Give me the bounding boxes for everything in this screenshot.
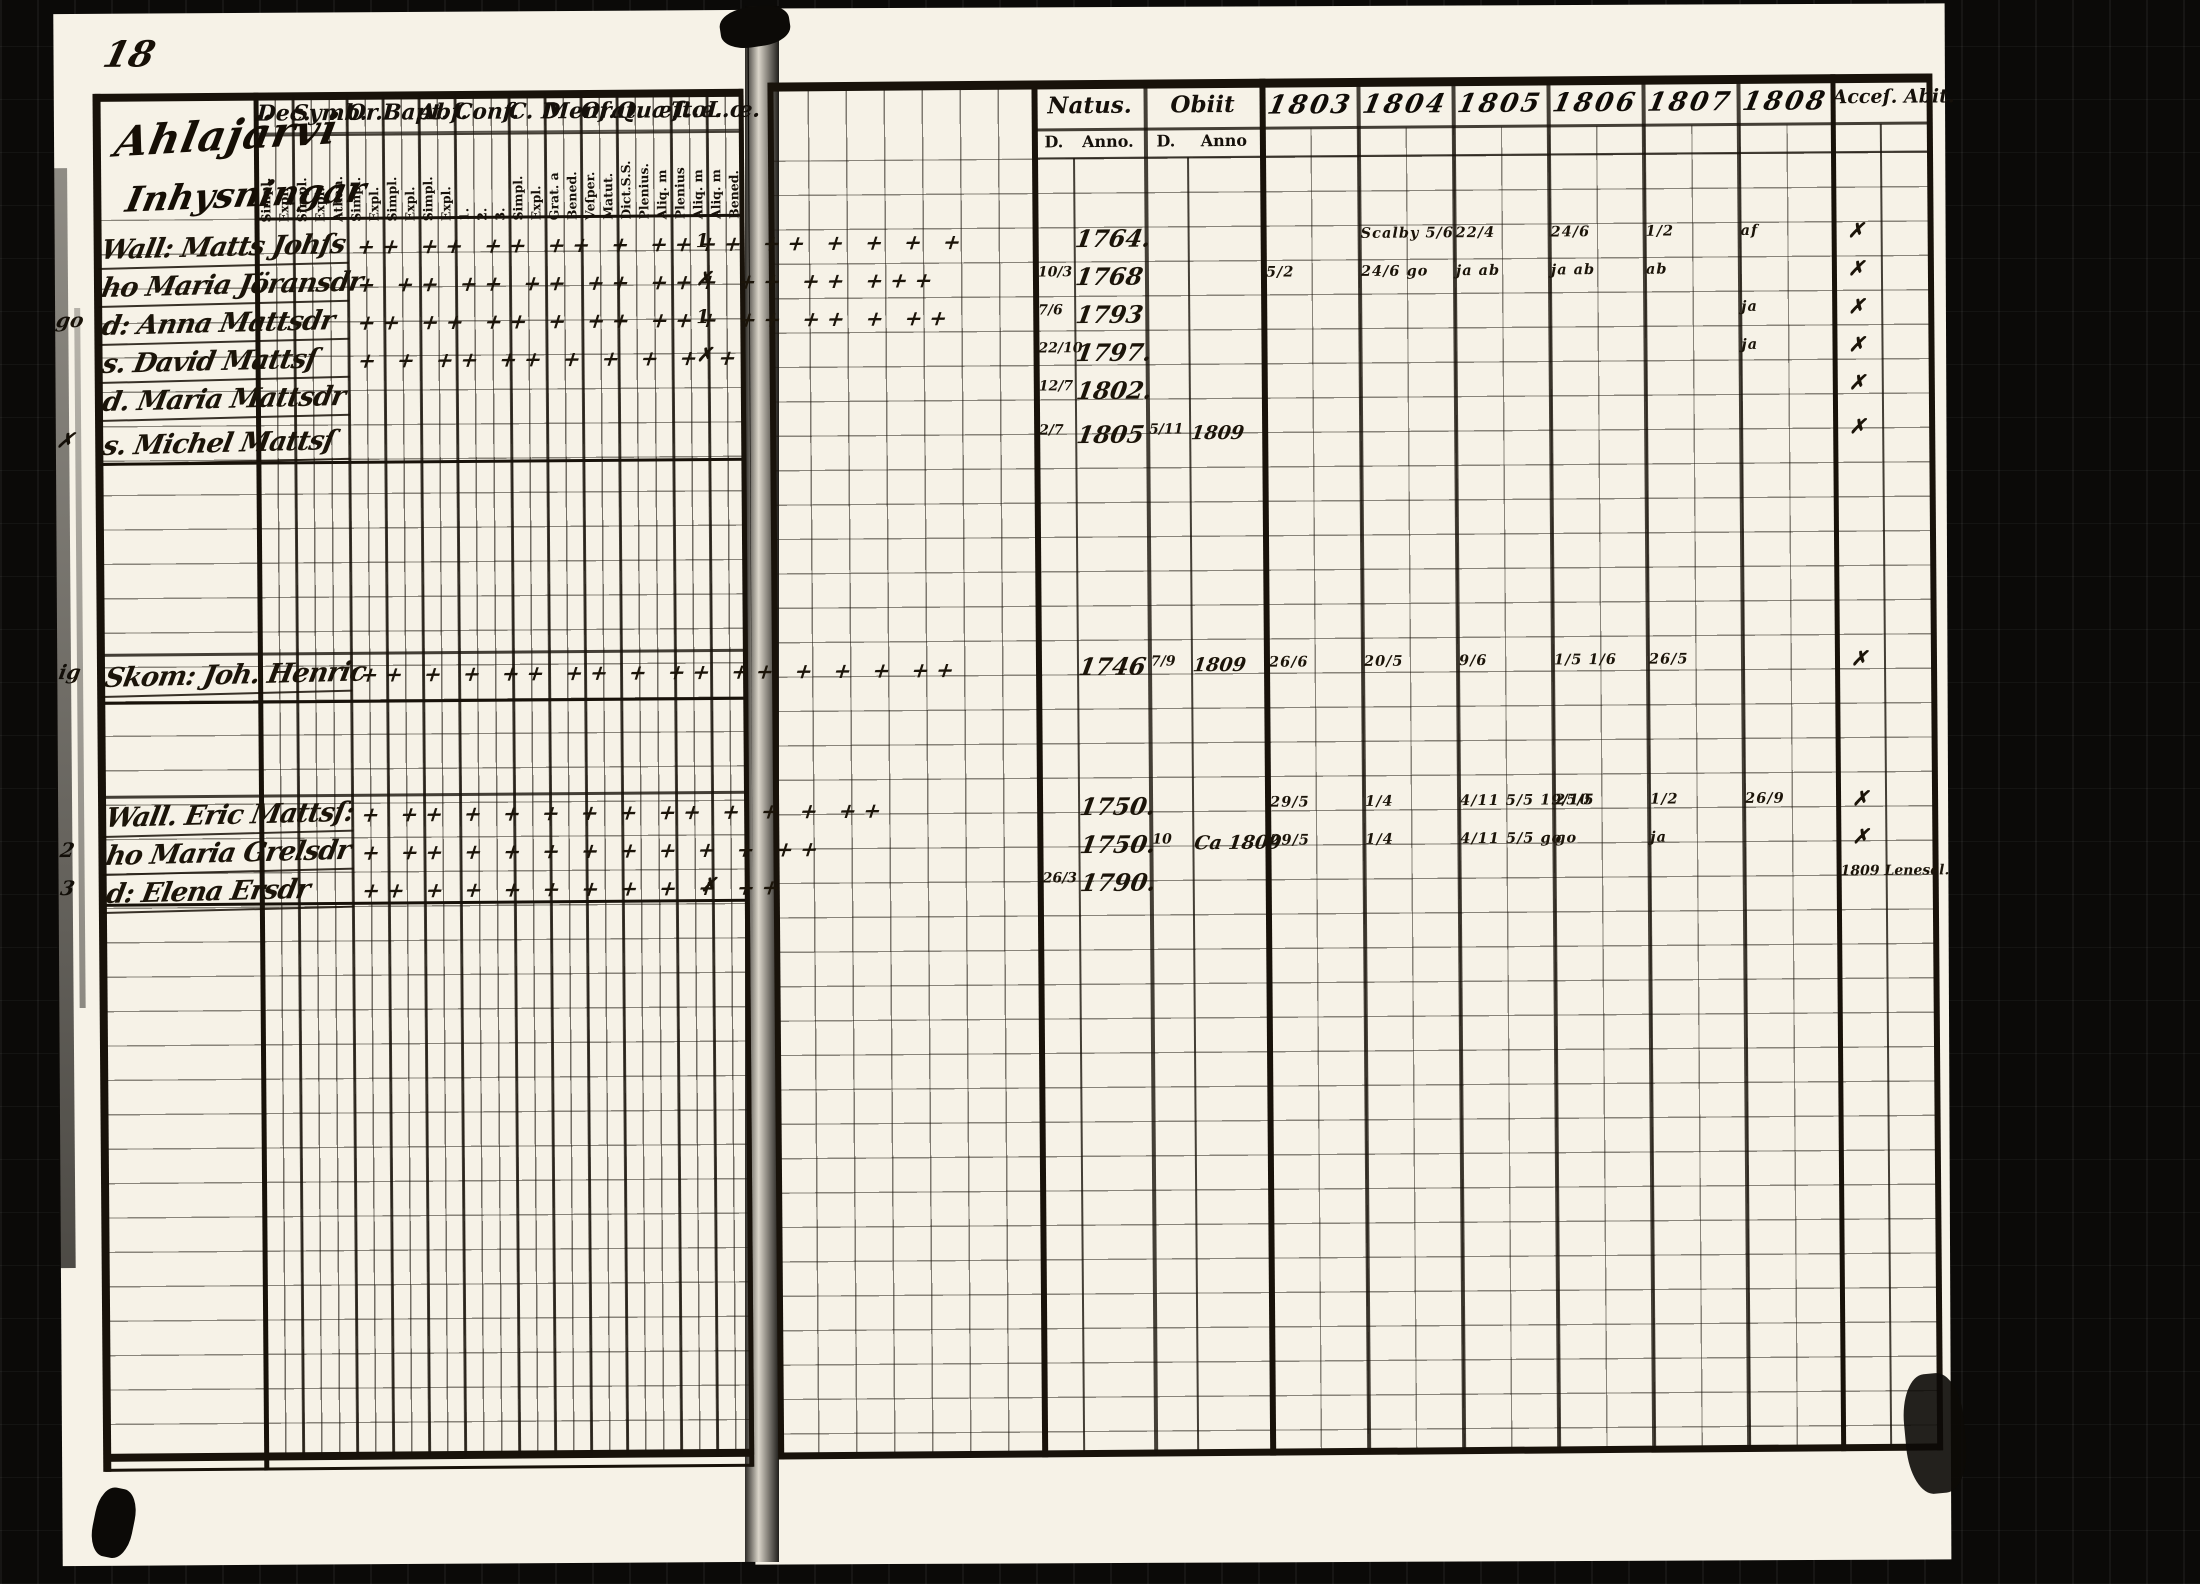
subheader: Expl. <box>527 134 546 220</box>
communion-1807 <box>1647 374 1741 375</box>
subheader-natus-anno: Anno. <box>1073 132 1143 152</box>
communion-1806: 1/5 1/6 <box>1554 651 1648 669</box>
subheader: Simpl. <box>419 135 438 221</box>
subheader: Simpl. <box>347 136 366 222</box>
communion-1804 <box>1362 420 1456 421</box>
scan-artifact <box>1900 1371 1971 1496</box>
year-header-1803: 1803 <box>1260 90 1361 121</box>
attendance-marks: ++ + + + + + + + + ++ <box>359 875 712 903</box>
obiit-year <box>1190 302 1264 303</box>
communion-1806: 25/5 <box>1555 791 1649 809</box>
column-header-abs: Abſ. Simpl. Expl. <box>419 95 456 219</box>
communion-1803 <box>1266 225 1360 226</box>
communion-1807: 1/2 <box>1650 790 1744 808</box>
communion-1803: 26/6 <box>1269 653 1363 671</box>
communion-1807: 26/5 <box>1649 650 1743 668</box>
column-header-toe: T.œ. Plenius Aliq. m <box>670 93 707 217</box>
communion-1804 <box>1361 300 1455 301</box>
obiit-year <box>1190 340 1264 341</box>
communion-1808 <box>1742 417 1836 418</box>
natus-year: 1768 <box>1074 262 1149 292</box>
subheader: Simpl. <box>383 135 402 221</box>
subheader: Dict.S.S. <box>617 134 636 220</box>
communion-1805: 4/11 5/5 go <box>1460 829 1554 847</box>
subheader: Simpl. <box>257 136 276 222</box>
obiit-year <box>1190 226 1264 227</box>
person-name: Wall: Matts Johſs <box>98 228 356 270</box>
natus-year: 1746 <box>1077 652 1152 682</box>
person-name: d: Elena Ersdr <box>103 872 361 914</box>
communion-1807 <box>1646 336 1740 337</box>
year-header-1804: 1804 <box>1355 89 1456 120</box>
column-header-cd: C. D Simpl. Expl. <box>509 94 546 218</box>
attendance-marks <box>359 427 704 430</box>
communion-1803 <box>1266 301 1360 302</box>
header-label: Orat. <box>579 94 617 132</box>
natus-year: 1750. <box>1078 830 1153 860</box>
header-label: Dec. <box>255 96 293 134</box>
abit-mark: ✗ <box>1849 414 1893 438</box>
communion-1804: 1/4 <box>1365 792 1459 810</box>
header-label: Quæſt. <box>615 93 671 131</box>
column-header-bapt: Bapt. Simpl. Expl. <box>383 95 420 219</box>
communion-1803 <box>1271 869 1365 870</box>
subheader-obiit-d: D. <box>1145 131 1187 150</box>
attendance-marks: + ++ ++ ++ ++ +++ ++ ++ +++ <box>354 269 707 297</box>
person-name: d: Anna Mattsdr <box>99 304 357 346</box>
communion-1806: ja ab <box>1551 261 1645 279</box>
communion-1805: 4/11 5/5 19/10 <box>1460 791 1554 809</box>
communion-1806 <box>1552 419 1646 420</box>
communion-1806 <box>1552 375 1646 376</box>
obiit-day: 5/11 <box>1149 421 1189 437</box>
column-header-conf: Conf. 1. 2. 3. <box>455 95 510 219</box>
communion-1808 <box>1745 827 1839 828</box>
communion-1805 <box>1457 375 1551 376</box>
obiit-year: 1809 <box>1190 422 1267 445</box>
communion-1807: ja <box>1650 828 1744 846</box>
subheader: Aliq. m <box>689 133 708 219</box>
attendance-marks: + + ++ ++ + + + + + <box>355 345 708 373</box>
subheader: Aliq. m <box>653 133 672 219</box>
attendance-marks: ++ ++ ++ + ++ +++ ++ ++ + ++ <box>354 307 707 335</box>
left-table-bottom-rule-2 <box>105 1464 753 1472</box>
communion-1804 <box>1362 376 1456 377</box>
year-header-1806: 1806 <box>1545 88 1646 119</box>
communion-1804 <box>1366 868 1460 869</box>
obiit-year <box>1194 794 1268 795</box>
communion-1804: 1/4 <box>1365 830 1459 848</box>
subheader: Bened. <box>563 134 582 220</box>
scan-artifact <box>87 1484 140 1561</box>
communion-1805: ja ab <box>1456 261 1550 279</box>
lm-mark: 1 <box>696 230 738 252</box>
lm-mark: ✗ <box>701 874 743 896</box>
communion-1805 <box>1457 419 1551 420</box>
communion-1805 <box>1461 867 1555 868</box>
subheader: Expl. <box>401 135 420 221</box>
communion-1808 <box>1744 649 1838 650</box>
abit-mark: ✗ <box>1848 294 1892 318</box>
subheader: Veſper. <box>581 134 600 220</box>
communion-1807 <box>1646 298 1740 299</box>
subheader-natus-d: D. <box>1035 132 1073 151</box>
subheader: 3. <box>491 135 510 221</box>
subheader: Aliq. m <box>707 133 726 219</box>
subheader: Plenius <box>671 133 690 219</box>
lm-mark: ✗ <box>696 268 738 290</box>
abit-mark: ✗ <box>1851 646 1895 670</box>
communion-1808 <box>1741 259 1835 260</box>
communion-1805: 22/4 <box>1456 223 1550 241</box>
column-header-obiit: Obiit <box>1147 91 1259 119</box>
subheader: 2. <box>473 135 492 221</box>
natus-day: 12/7 <box>1039 378 1075 394</box>
abit-mark: ✗ <box>1849 370 1893 394</box>
natus-year: 1797. <box>1074 338 1149 368</box>
communion-1804: 24/6 go <box>1361 262 1455 280</box>
communion-1804: Scalby 5/6 <box>1361 224 1455 242</box>
column-header-symb: Symb. Simpl. Expl. Athan. <box>293 96 348 220</box>
natus-year: 1802. <box>1074 376 1149 406</box>
column-header-orat: Orat. Veſper. Matut. <box>581 94 618 218</box>
subheader: Expl. <box>275 136 294 222</box>
natus-year: 1793 <box>1074 300 1149 330</box>
person-name: s. Michel Mattsſ <box>99 424 357 466</box>
attendance-marks: ++ ++ ++ ++ + ++++ ++ + + + + <box>354 231 707 259</box>
year-header-1807: 1807 <box>1640 87 1741 118</box>
attendance-marks: + ++ + + + + + ++ + + + ++ <box>358 799 711 827</box>
natus-year: 1805 <box>1075 420 1150 450</box>
abit-mark: ✗ <box>1848 256 1892 280</box>
subheader-obiit-anno: Anno <box>1187 131 1261 151</box>
row-note: 1809 Lenesel. <box>1841 863 1941 879</box>
communion-1808: af <box>1741 221 1835 239</box>
communion-1805 <box>1456 299 1550 300</box>
subheader: Expl. <box>437 135 456 221</box>
subheader: Simpl. <box>509 134 528 220</box>
obiit-year <box>1195 870 1269 871</box>
scan-artifact <box>717 2 792 52</box>
column-header-loe: L.œ. Aliq. m Bened. <box>706 93 743 217</box>
page-number: 18 <box>99 33 159 75</box>
communion-1803: 29/5 <box>1270 793 1364 811</box>
subheader: Matut. <box>599 134 618 220</box>
header-label: Conf. <box>453 95 509 133</box>
communion-1808: ja <box>1741 297 1835 315</box>
attendance-marks: + ++ + + + + + + + + ++ <box>358 837 711 865</box>
column-header-quaest: Quæſt. Dict.S.S. Plenius. Aliq. m <box>617 93 672 217</box>
natus-year: 1764. <box>1073 224 1148 254</box>
communion-1806: 24/6 <box>1551 223 1645 241</box>
natus-day: 26/3 <box>1043 870 1079 886</box>
communion-1803: 29/5 <box>1270 831 1364 849</box>
subheader: Plenius. <box>635 133 654 219</box>
subheader: Bened. <box>725 133 744 219</box>
communion-1803 <box>1266 339 1360 340</box>
subheader: Simpl. <box>293 136 312 222</box>
column-header-dec: Dec. Simpl. Expl. <box>257 96 294 220</box>
person-name: d. Maria Mattsdr <box>99 380 357 422</box>
header-label: Abſ. <box>417 95 455 133</box>
subheader: Expl. <box>311 136 330 222</box>
natus-day: 7/6 <box>1038 302 1074 318</box>
communion-1807: ab <box>1646 260 1740 278</box>
person-name: s. David Mattsſ <box>99 342 357 384</box>
communion-1805 <box>1456 337 1550 338</box>
person-name: Wall. Eric Mattsſ: <box>102 796 360 838</box>
communion-1808: 26/9 <box>1745 789 1839 807</box>
natus-year: 1750. <box>1078 792 1153 822</box>
abit-mark: ✗ <box>1848 332 1892 356</box>
abit-mark: ✗ <box>1848 218 1892 242</box>
communion-1804 <box>1361 338 1455 339</box>
subheader: Grat. a <box>545 134 564 220</box>
year-header-1805: 1805 <box>1450 88 1551 119</box>
obiit-day: 7/9 <box>1151 653 1191 669</box>
communion-1808 <box>1746 865 1840 866</box>
header-label: Or.L <box>345 96 383 134</box>
obiit-year <box>1191 378 1265 379</box>
communion-1806 <box>1551 337 1645 338</box>
column-header-acces-abit: Acceſ. Abit. <box>1832 85 1928 108</box>
column-header-mens: Menſ. Grat. a Bened. <box>545 94 582 218</box>
header-label: T.œ. <box>669 93 707 131</box>
header-label: Bapt. <box>381 95 419 133</box>
obiit-day: 10 <box>1152 831 1192 847</box>
communion-1807: 1/2 <box>1646 222 1740 240</box>
abit-mark: ✗ <box>1852 824 1896 848</box>
subheader: 1. <box>455 135 474 221</box>
communion-1803 <box>1267 421 1361 422</box>
communion-1805: 9/6 <box>1459 651 1553 669</box>
communion-1807 <box>1647 418 1741 419</box>
communion-1808: ja <box>1741 335 1835 353</box>
lm-mark: ✗ <box>696 344 738 366</box>
natus-day: 22/10 <box>1038 340 1074 356</box>
attendance-marks <box>359 383 704 386</box>
header-label: C. D <box>507 94 545 132</box>
column-header-orl: Or.L Simpl. Expl. <box>347 96 384 220</box>
subheader: Expl. <box>365 136 384 222</box>
communion-1804: 20/5 <box>1364 652 1458 670</box>
natus-year: 1790. <box>1078 868 1153 898</box>
communion-1807 <box>1651 866 1745 867</box>
communion-1803: 5/2 <box>1266 263 1360 281</box>
scanned-ledger-page: 18 Ahlajärvi Inhysningar Dec. Simpl. Exp… <box>0 0 2200 1584</box>
communion-1803 <box>1267 377 1361 378</box>
header-label: Menſ. <box>543 94 581 132</box>
person-name: ho Maria Jöransdr <box>98 266 356 308</box>
subheader: Athan. <box>329 136 348 222</box>
obiit-year: 1809 <box>1192 654 1269 677</box>
attendance-marks: ++ + + ++ ++ + ++ ++ + + + ++ <box>357 659 710 687</box>
header-label: L.œ. <box>705 93 743 131</box>
person-name: ho Maria Grelsdr <box>103 834 361 876</box>
obiit-year <box>1190 264 1264 265</box>
natus-day: 10/3 <box>1038 264 1074 280</box>
header-label: Symb. <box>291 96 347 134</box>
person-name: Skom: Joh. Henric <box>101 656 359 698</box>
column-header-natus: Natus. <box>1037 92 1143 120</box>
communion-1806 <box>1551 299 1645 300</box>
communion-1806 <box>1556 867 1650 868</box>
communion-1806: go <box>1555 829 1649 847</box>
lm-mark: 1 <box>696 306 738 328</box>
natus-day: 2/7 <box>1039 422 1075 438</box>
year-header-1808: 1808 <box>1735 86 1836 117</box>
ledger-content: 18 Ahlajärvi Inhysningar Dec. Simpl. Exp… <box>0 0 2200 1584</box>
obiit-year: Ca 1809 <box>1193 832 1270 855</box>
communion-1808 <box>1742 373 1836 374</box>
abit-mark: ✗ <box>1852 786 1896 810</box>
